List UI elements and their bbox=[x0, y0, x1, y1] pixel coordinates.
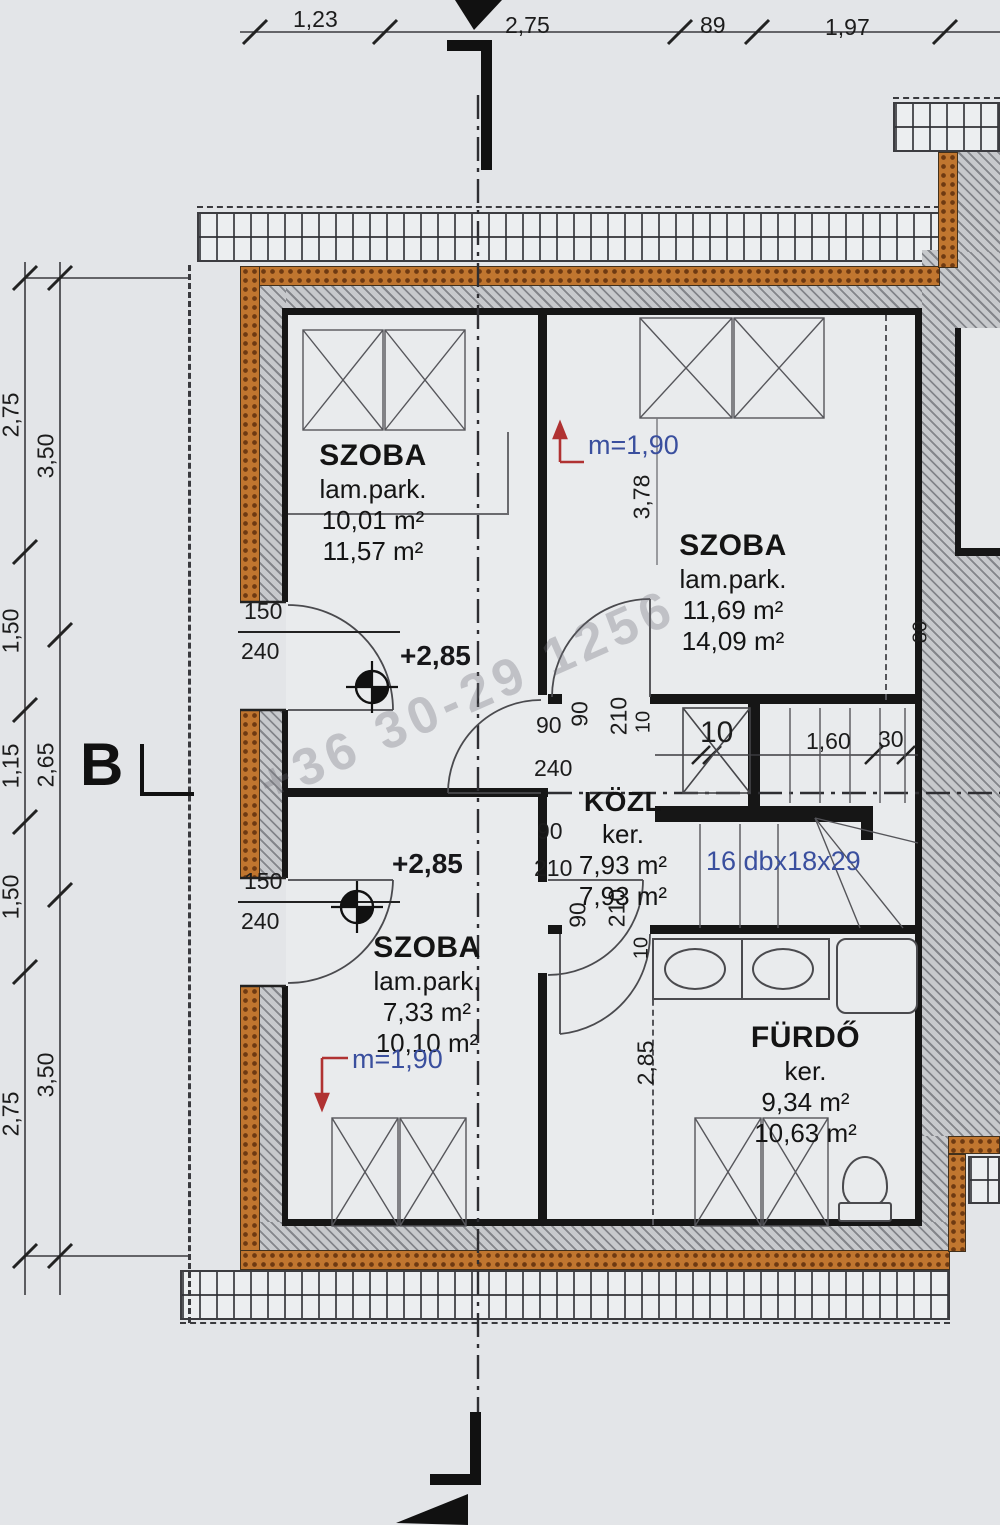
vanity-divider bbox=[741, 938, 743, 1000]
room-furdo: FÜRDŐ ker. 9,34 m² 10,63 m² bbox=[738, 1020, 873, 1150]
inner-face-right bbox=[915, 308, 922, 1226]
dim-90-top-b: 90 bbox=[567, 701, 594, 727]
wall-bottom bbox=[258, 1222, 950, 1250]
floor-plan: 1,23 2,75 89 1,97 2,75 1,50 1,15 1,50 2,… bbox=[0, 0, 1000, 1525]
room-name: SZOBA bbox=[342, 930, 512, 966]
stair-dim-10: 10 bbox=[700, 716, 733, 750]
door-top-width: 150 bbox=[244, 598, 282, 625]
bath-top-wall bbox=[650, 925, 922, 934]
toilet-bowl bbox=[842, 1156, 888, 1208]
height-dashed-right bbox=[885, 315, 887, 700]
room-szoba-top-left: SZOBA lam.park. 10,01 m² 11,57 m² bbox=[288, 438, 458, 568]
dim-left-outer-3: 1,15 bbox=[0, 744, 25, 789]
roof-eave-top-right bbox=[893, 102, 1000, 152]
room-area-gross: 10,63 m² bbox=[738, 1118, 873, 1149]
neighbour-interior bbox=[958, 328, 1000, 554]
insulation-right-step-h bbox=[948, 1136, 1000, 1154]
stair-top-wall-stub bbox=[548, 694, 562, 704]
dim-285: 2,85 bbox=[633, 1041, 660, 1086]
room-floor: lam.park. bbox=[288, 474, 458, 505]
party-wall-right-lower bbox=[922, 1136, 948, 1222]
toilet-tank bbox=[838, 1202, 892, 1222]
door-bottom-width: 150 bbox=[244, 868, 282, 895]
bath-top-wall-stub bbox=[548, 925, 562, 934]
dim-10-bot: 10 bbox=[631, 937, 654, 959]
dim-10-top: 10 bbox=[633, 711, 656, 733]
room-area-gross: 7,93 m² bbox=[558, 881, 688, 912]
washbasin-right bbox=[752, 948, 814, 990]
party-wall-right-upper bbox=[958, 152, 1000, 252]
room-area-net: 10,01 m² bbox=[288, 505, 458, 536]
dim-left-outer-5: 2,75 bbox=[0, 1092, 25, 1137]
insulation-right-step-v bbox=[948, 1154, 966, 1252]
shower-tray bbox=[836, 938, 918, 1014]
height-line-tl-v bbox=[507, 432, 509, 515]
dim-top-3: 89 bbox=[700, 12, 726, 39]
inner-face-bottom bbox=[286, 1219, 922, 1226]
dim-210-top: 210 bbox=[606, 697, 633, 735]
level-mark-lower: +2,85 bbox=[392, 848, 463, 880]
dim-left-inner-2: 2,65 bbox=[33, 743, 60, 788]
roof-eave-bottom-right bbox=[968, 1156, 1000, 1204]
dim-left-outer-1: 2,75 bbox=[0, 393, 25, 438]
inner-face-left-c bbox=[282, 986, 288, 1226]
door-bottom-height: 240 bbox=[241, 908, 279, 935]
dim-left-outer-4: 1,50 bbox=[0, 875, 25, 920]
stair-top-wall bbox=[650, 694, 922, 704]
dim-left-inner-1: 3,50 bbox=[33, 434, 60, 479]
room-szoba-bottom-left: SZOBA lam.park. 7,33 m² 10,10 m² bbox=[342, 930, 512, 1060]
room-name: FÜRDŐ bbox=[738, 1020, 873, 1056]
stair-dim-30: 30 bbox=[878, 726, 904, 753]
dim-top-1: 1,23 bbox=[293, 6, 338, 33]
partition-corridor-lower bbox=[538, 973, 547, 1226]
dim-378: 3,78 bbox=[629, 475, 656, 520]
washbasin-left bbox=[664, 948, 726, 990]
stair-spine-v bbox=[748, 700, 760, 808]
inner-face-top bbox=[286, 308, 922, 315]
dim-80: 80 bbox=[910, 621, 933, 643]
neighbour-wall-corner bbox=[955, 548, 1000, 556]
room-area-net: 7,33 m² bbox=[342, 997, 512, 1028]
stair-steps-label: 16 dbx18x29 bbox=[706, 846, 861, 877]
neighbour-wall-edge bbox=[955, 328, 961, 554]
roof-height-upper: m=1,90 bbox=[588, 430, 679, 461]
stair-spine-hook bbox=[861, 806, 873, 840]
dim-top-2: 2,75 bbox=[505, 12, 550, 39]
roof-height-lower: m=1,90 bbox=[352, 1044, 443, 1075]
section-b-mark bbox=[142, 744, 194, 794]
room-kozl: KÖZL ker. 7,93 m² 7,93 m² bbox=[558, 785, 688, 912]
insulation-left-mid bbox=[240, 710, 260, 878]
insulation-right-upper bbox=[938, 152, 958, 268]
insulation-bottom bbox=[240, 1250, 950, 1270]
insulation-left-upper bbox=[240, 266, 260, 602]
room-name: SZOBA bbox=[288, 438, 458, 474]
roof-edge-dashed-topright bbox=[893, 97, 1000, 99]
roof-edge-dashed-bottom bbox=[180, 1322, 950, 1324]
stair-dim-160: 1,60 bbox=[806, 728, 851, 755]
insulation-top bbox=[240, 266, 940, 286]
dim-240: 240 bbox=[534, 755, 572, 782]
section-cut-bottom bbox=[396, 1412, 481, 1525]
dim-90-top-a: 90 bbox=[536, 712, 562, 739]
insulation-left-lower bbox=[240, 986, 260, 1270]
room-area-gross: 11,57 m² bbox=[288, 536, 458, 567]
room-name: KÖZL bbox=[558, 785, 688, 819]
door-top-height: 240 bbox=[241, 638, 279, 665]
dim-top-4: 1,97 bbox=[825, 14, 870, 41]
room-area-net: 7,93 m² bbox=[558, 850, 688, 881]
dim-left-outer-2: 1,50 bbox=[0, 609, 25, 654]
dim-left-inner-3: 3,50 bbox=[33, 1053, 60, 1098]
room-floor: ker. bbox=[558, 819, 688, 850]
room-area-net: 9,34 m² bbox=[738, 1087, 873, 1118]
room-floor: ker. bbox=[738, 1056, 873, 1087]
room-floor: lam.park. bbox=[342, 966, 512, 997]
roof-eave-top bbox=[197, 212, 940, 262]
section-cut-top bbox=[447, 0, 502, 170]
roof-edge-dashed-top bbox=[197, 206, 940, 208]
plot-boundary-dashed bbox=[188, 265, 191, 1323]
section-label-b: B bbox=[80, 730, 123, 799]
roof-eave-bottom bbox=[180, 1270, 950, 1320]
